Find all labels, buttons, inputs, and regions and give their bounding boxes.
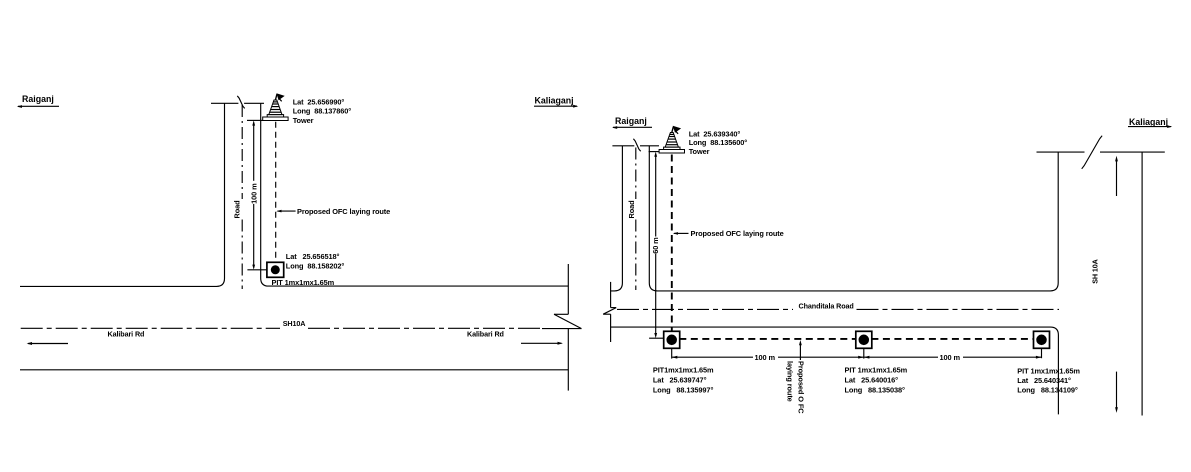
svg-text:Kaliaganj: Kaliaganj (1129, 117, 1168, 127)
svg-text:Long 88.158202°: Long 88.158202° (286, 261, 345, 270)
svg-text:Lat 25.656518°: Lat 25.656518° (286, 252, 340, 261)
svg-text:Kalibari Rd: Kalibari Rd (108, 330, 145, 339)
svg-text:Long 88.135038°: Long 88.135038° (845, 385, 906, 394)
svg-text:Proposed OFC laying route: Proposed OFC laying route (297, 207, 390, 216)
svg-text:Raiganj: Raiganj (615, 116, 647, 126)
svg-text:Chanditala Road: Chanditala Road (799, 301, 854, 310)
svg-text:SH10A: SH10A (283, 319, 306, 328)
svg-text:Proposed O FC: Proposed O FC (797, 361, 806, 414)
svg-text:Tower: Tower (293, 116, 314, 125)
svg-text:100 m: 100 m (755, 353, 776, 362)
svg-text:Kaliaganj: Kaliaganj (535, 96, 574, 106)
svg-text:laying route: laying route (786, 361, 795, 402)
svg-text:Long 88.137860°: Long 88.137860° (293, 107, 352, 116)
svg-text:Lat 25.640341°: Lat 25.640341° (1017, 376, 1071, 385)
svg-text:PIT1mx1mx1.65m: PIT1mx1mx1.65m (653, 366, 714, 375)
svg-text:Road: Road (233, 200, 242, 219)
svg-text:Lat 25.656990°: Lat 25.656990° (293, 97, 345, 106)
svg-text:100 m: 100 m (249, 183, 258, 204)
svg-text:Long 88.135600°: Long 88.135600° (689, 138, 748, 147)
svg-text:Raiganj: Raiganj (22, 94, 54, 104)
svg-text:Long 88.135997°: Long 88.135997° (653, 385, 714, 394)
svg-text:Tower: Tower (689, 147, 710, 156)
svg-text:SH 10A: SH 10A (1091, 259, 1100, 284)
svg-text:Kalibari Rd: Kalibari Rd (467, 330, 504, 339)
svg-text:Long 88.134109°: Long 88.134109° (1017, 385, 1078, 394)
svg-text:100 m: 100 m (940, 353, 961, 362)
svg-text:PIT 1mx1mx1.65m: PIT 1mx1mx1.65m (272, 278, 335, 287)
svg-text:Lat 25.640016°: Lat 25.640016° (845, 376, 899, 385)
svg-text:60 m: 60 m (651, 237, 660, 254)
svg-text:Proposed OFC laying route: Proposed OFC laying route (691, 229, 784, 238)
svg-text:Road: Road (627, 200, 636, 219)
svg-text:PIT 1mx1mx1.65m: PIT 1mx1mx1.65m (845, 366, 908, 375)
svg-text:Lat 25.639747°: Lat 25.639747° (653, 376, 707, 385)
svg-text:PIT 1mx1mx1.65m: PIT 1mx1mx1.65m (1017, 366, 1080, 375)
